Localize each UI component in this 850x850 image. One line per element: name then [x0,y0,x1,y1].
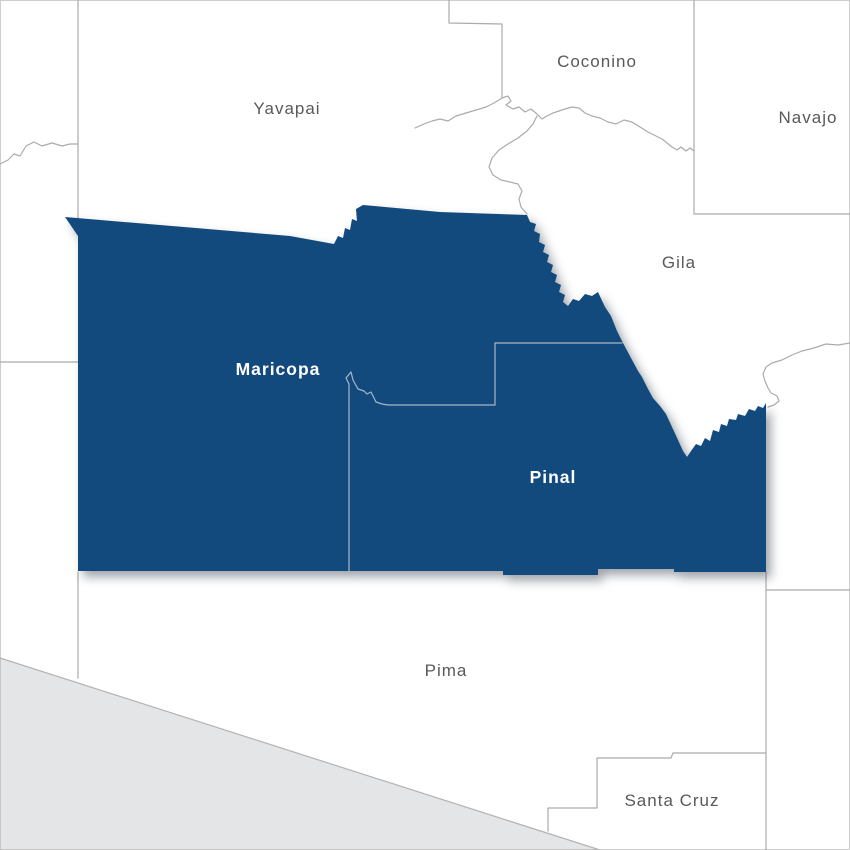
county-label-pinal: Pinal [530,467,577,487]
arizona-county-map: YavapaiCoconinoNavajoGilaPimaSanta CruzM… [0,0,850,850]
highlighted-counties-layer [65,205,766,575]
outside-state-layer [0,658,600,850]
county-label-gila: Gila [662,253,696,272]
map-canvas: YavapaiCoconinoNavajoGilaPimaSanta CruzM… [0,0,850,850]
coconino-west-line [449,0,502,98]
mohave-lapaz-river [0,142,78,164]
verde-river-line [489,116,537,214]
santacruz-north-line [597,753,766,758]
county-label-coconino: Coconino [557,52,637,71]
maricopa-pinal-highlight[interactable] [65,205,766,575]
county-label-maricopa: Maricopa [236,359,321,379]
county-label-santa-cruz: Santa Cruz [624,791,719,810]
santacruz-west-line [548,758,597,831]
mogollon-rim-line [415,96,694,151]
county-label-pima: Pima [425,661,468,680]
county-label-navajo: Navajo [779,108,838,127]
county-label-yavapai: Yavapai [253,99,320,118]
gila-graham-line [763,343,850,407]
mexico-area [0,658,600,850]
